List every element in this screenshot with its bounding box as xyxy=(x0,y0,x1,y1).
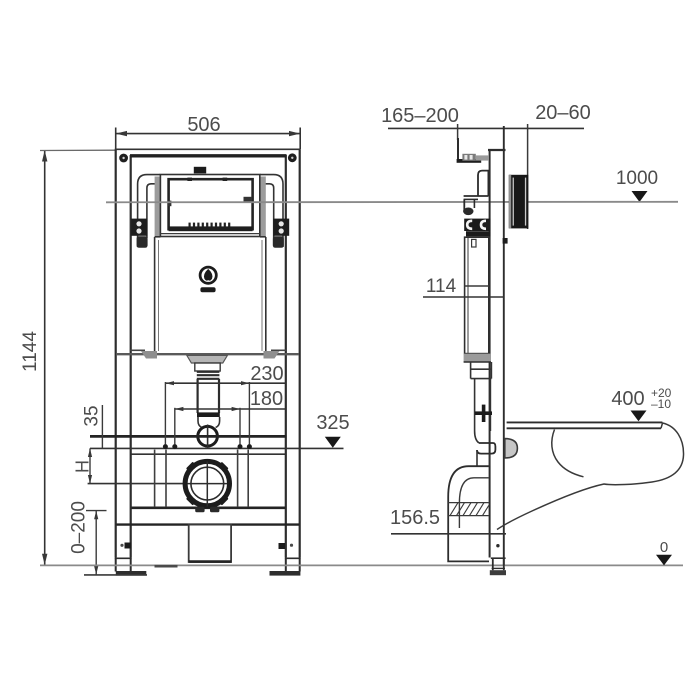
svg-text:156.5: 156.5 xyxy=(390,507,440,529)
svg-text:180: 180 xyxy=(250,388,283,410)
svg-text:35: 35 xyxy=(82,405,103,426)
svg-text:114: 114 xyxy=(426,276,457,297)
svg-text:325: 325 xyxy=(316,412,349,434)
svg-text:165–200: 165–200 xyxy=(381,105,459,127)
svg-text:1144: 1144 xyxy=(20,331,41,372)
svg-text:20–60: 20–60 xyxy=(535,102,591,124)
svg-text:1000: 1000 xyxy=(616,168,658,189)
svg-text:506: 506 xyxy=(187,114,220,136)
svg-text:230: 230 xyxy=(250,363,283,385)
svg-text:0–200: 0–200 xyxy=(68,501,89,554)
svg-text:–10: –10 xyxy=(651,397,671,411)
svg-text:0: 0 xyxy=(660,539,668,556)
svg-text:400: 400 xyxy=(611,388,644,410)
